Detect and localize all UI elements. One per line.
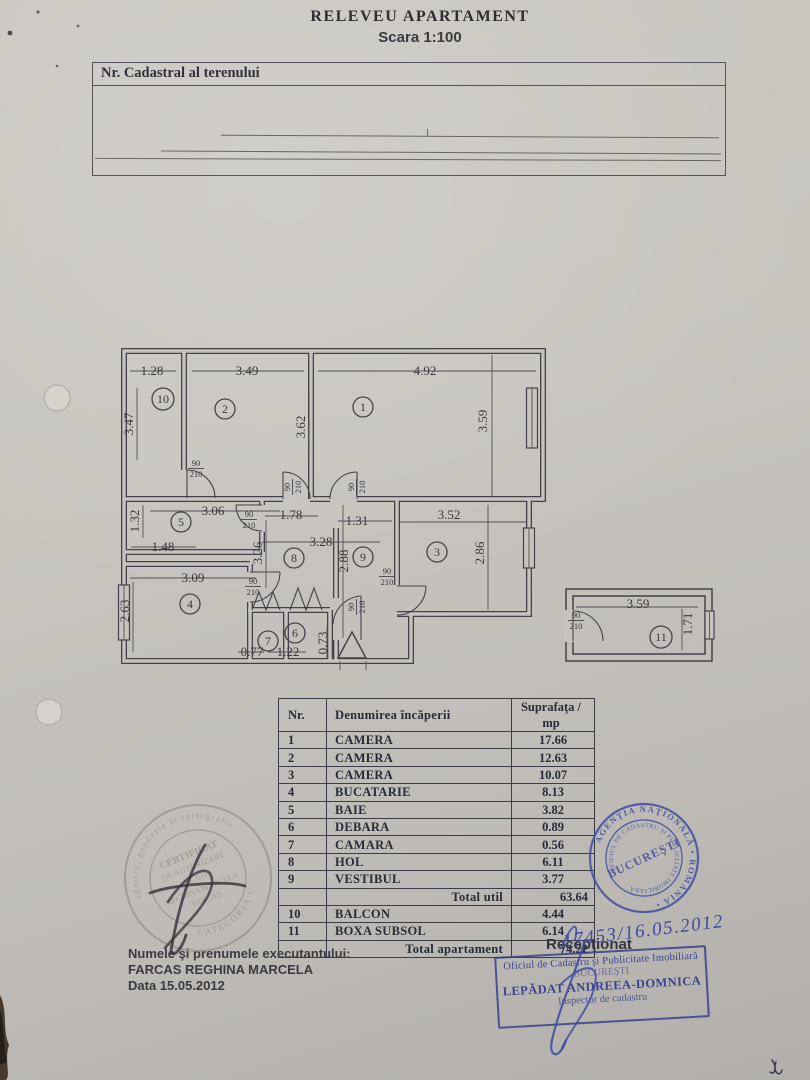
signature-executant [150, 845, 245, 954]
room-number-text: 6 [292, 626, 298, 640]
rect-stamp: Oficiul de Cadastru şi Publicitate Imobi… [494, 945, 710, 1029]
dimension-label: 2.88 [336, 550, 351, 573]
svg-text:AGENŢIA NAŢIONALĂ • ROMÂNIA: AGENŢIA NAŢIONALĂ • ROMÂNIA • [586, 786, 716, 923]
table-row: 6DEBARA0.89 [279, 818, 595, 835]
room-number: 7 [258, 631, 278, 651]
triangle-symbol [338, 632, 366, 658]
stray-mark [427, 129, 428, 137]
room-number: 3 [427, 542, 447, 562]
room-number-text: 4 [187, 597, 193, 611]
table-row: 9VESTIBUL3.77 [279, 871, 595, 888]
door-width: 90 [346, 483, 356, 492]
door-size-label: 90210 [568, 610, 584, 631]
table-row: 3CAMERA10.07 [279, 766, 595, 783]
room-number: 4 [180, 594, 200, 614]
table-header-row: Nr. Denumirea încăperii Suprafaţa / mp [279, 699, 595, 732]
door-height: 210 [357, 481, 367, 494]
room-number-text: 3 [434, 545, 440, 559]
svg-text:FARCAŞ: FARCAŞ [191, 889, 223, 909]
door-width: 90 [572, 610, 581, 620]
stamp-ring-text: AGENŢIA NAŢIONALĂ • ROMÂNIA • [586, 786, 716, 923]
dimension-label: 1.78 [280, 507, 303, 522]
blank-line [221, 135, 719, 139]
door-width: 90 [383, 566, 392, 576]
dimension-label: 2.86 [472, 541, 487, 564]
dimension-label: 3.49 [236, 363, 259, 378]
room-number-text: 8 [291, 551, 297, 565]
scan-artifacts [0, 10, 79, 1080]
stamp-ring-text: CATEGORIA C [186, 882, 267, 941]
room-number: 10 [152, 388, 174, 410]
room-number: 1 [353, 397, 373, 417]
dimension-label: 3.59 [627, 596, 650, 611]
table-row: 5BAIE3.82 [279, 801, 595, 818]
door-height: 210 [190, 469, 203, 479]
door-height: 210 [570, 621, 583, 631]
door-size-label: 90210 [282, 479, 303, 495]
dimension-label: 3.59 [475, 410, 490, 433]
window-symbols [119, 388, 715, 640]
room-number-text: 2 [222, 402, 228, 416]
table-row: 4BUCATARIE8.13 [279, 784, 595, 801]
blank-line [161, 151, 721, 155]
door-symbols [187, 470, 603, 641]
door-width: 90 [245, 509, 254, 519]
room-number-text: 9 [360, 550, 366, 564]
table-row: 7CAMARA0.56 [279, 836, 595, 853]
dimension-label: 1.71 [680, 613, 695, 636]
dimension-label: 3.09 [182, 570, 205, 585]
svg-text:CERTIFICAT: CERTIFICAT [158, 839, 220, 872]
dimension-label: 4.92 [414, 363, 437, 378]
scale-label: Scara 1:100 [250, 29, 590, 46]
scanned-sheet: RELEVEU APARTAMENT Scara 1:100 Nr. Cadas… [0, 0, 810, 1080]
dimension-label: 2.63 [117, 600, 132, 623]
door-height: 210 [243, 520, 256, 530]
dimension-label: 3.47 [121, 412, 136, 435]
door-size-label: 90210 [346, 599, 367, 615]
floor-plan: 1.283.494.923.473.623.593.061.321.481.78… [117, 351, 714, 670]
closet-symbols [252, 588, 322, 610]
dimension-label: 3.62 [293, 416, 308, 439]
rooms-table: Nr. Denumirea încăperii Suprafaţa / mp 1… [278, 698, 595, 958]
room-table-body: 1CAMERA17.662CAMERA12.633CAMERA10.074BUC… [279, 732, 595, 958]
dimension-label: 3.26 [250, 541, 265, 564]
room-number: 11 [650, 626, 672, 648]
door-width: 90 [282, 483, 292, 492]
room-number: 5 [171, 512, 191, 532]
col-header-name: Denumirea încăperii [327, 699, 512, 732]
table-row: Total util63.64 [279, 888, 595, 905]
svg-text:CATEGORIA C: CATEGORIA C [186, 882, 267, 941]
dimension-label: 1.48 [152, 539, 175, 554]
round-stamp-authorization: de cadastru, geodezie şi cartografie CAT… [0, 29, 293, 1021]
door-height: 210 [247, 587, 260, 597]
door-size-label: 90210 [241, 509, 257, 530]
door-height: 210 [381, 577, 394, 587]
room-number: 8 [284, 548, 304, 568]
entrance-step [340, 661, 366, 670]
svg-text:Nr. 0119: Nr. 0119 [182, 867, 213, 887]
svg-text:BUCUREŞTI: BUCUREŞTI [605, 835, 683, 881]
dimension-label: 1.32 [127, 510, 142, 533]
door-size-label: 90210 [188, 458, 204, 479]
room-number-text: 5 [178, 515, 184, 529]
room-number: 9 [353, 547, 373, 567]
dimension-label: 1.31 [346, 513, 369, 528]
col-header-area: Suprafaţa / mp [512, 699, 595, 732]
blank-line [95, 158, 721, 161]
table-row: 8HOL6.11 [279, 853, 595, 870]
door-width: 90 [249, 576, 258, 586]
dimension-label: 3.06 [202, 503, 225, 518]
executant-date: Data 15.05.2012 [128, 978, 225, 994]
executant-name: FARCAS REGHINA MARCELA [128, 962, 313, 978]
dimension-label: 0.73 [315, 632, 330, 655]
door-size-label: 90210 [379, 566, 395, 587]
dimension-label: 1.22 [277, 644, 300, 659]
stamp-ring-text: OFICIUL DE CADASTRU ŞI PUBLICITATE IMOBI… [596, 810, 692, 906]
table-row: 1CAMERA17.66 [279, 732, 595, 749]
room-number-text: 10 [157, 392, 169, 406]
dimension-label: 3.28 [310, 534, 333, 549]
dimension-label: 1.28 [141, 363, 164, 378]
handwritten-number: 17453/16.05.2012 [562, 901, 803, 952]
door-width: 90 [192, 458, 201, 468]
page-title: RELEVEU APARTAMENT [250, 8, 590, 26]
pen-mark [770, 1060, 782, 1074]
table-row: 2CAMERA12.63 [279, 749, 595, 766]
door-size-label: 90210 [245, 576, 261, 597]
door-height: 210 [293, 481, 303, 494]
svg-text:DE AUTORIZARE: DE AUTORIZARE [160, 849, 226, 883]
hole-punches [36, 385, 70, 725]
room-number: 2 [215, 399, 235, 419]
door-width: 90 [346, 603, 356, 612]
door-size-label: 90210 [346, 479, 367, 495]
table-row: 10BALCON4.44 [279, 905, 595, 922]
cadastral-label: Nr. Cadastral al terenului [93, 63, 725, 86]
boxa-subsol-outline [564, 589, 712, 661]
room-number: 6 [285, 623, 305, 643]
dimension-lines [130, 355, 698, 658]
room-number-text: 11 [655, 630, 667, 644]
col-header-nr: Nr. [279, 699, 327, 732]
door-height: 210 [357, 601, 367, 614]
cadastral-box: Nr. Cadastral al terenului [92, 62, 726, 176]
room-number-text: 7 [265, 634, 271, 648]
svg-text:OFICIUL DE CADASTRU ŞI PUBLICI: OFICIUL DE CADASTRU ŞI PUBLICITATE IMOBI… [596, 810, 692, 906]
dimension-label: 0.77 [241, 644, 264, 659]
executant-label: Numele şi prenumele executantului: [128, 946, 351, 962]
room-number-text: 1 [360, 400, 366, 414]
dimension-label: 3.52 [438, 507, 461, 522]
svg-text:REGHINA MARCELA: REGHINA MARCELA [165, 870, 240, 907]
